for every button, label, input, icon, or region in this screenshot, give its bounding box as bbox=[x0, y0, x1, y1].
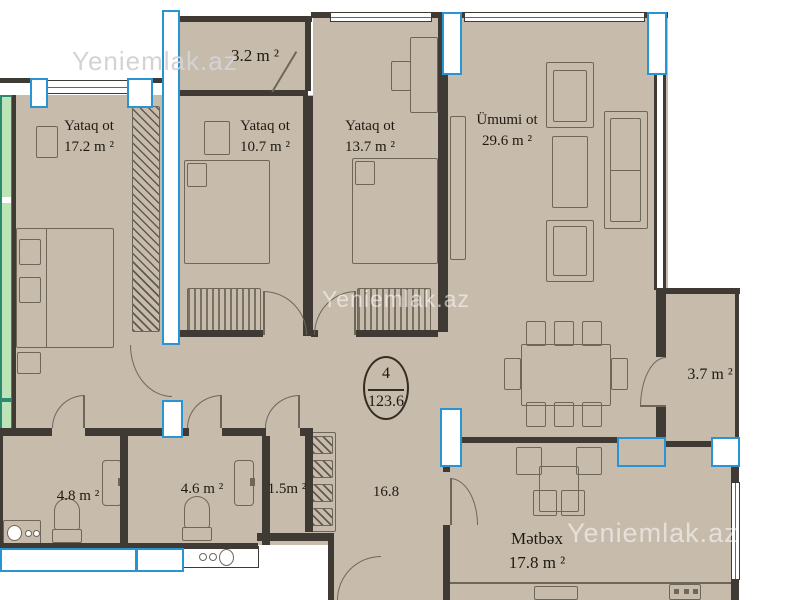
room-area: 4.6 m ² bbox=[181, 479, 223, 500]
chair-icon bbox=[504, 358, 521, 390]
radiator-icon bbox=[187, 288, 261, 332]
dining-table-icon bbox=[521, 344, 611, 406]
shelf-cell bbox=[312, 508, 333, 526]
wall bbox=[0, 433, 3, 545]
desk-icon bbox=[204, 121, 230, 155]
room-area: 1.5m ² bbox=[268, 479, 307, 500]
basin-tap-icon bbox=[33, 530, 40, 537]
room-label-living: Ümumi ot 29.6 m ² bbox=[476, 110, 537, 153]
wall bbox=[731, 578, 739, 600]
chair-icon bbox=[526, 321, 546, 346]
wall bbox=[222, 428, 266, 436]
room-label-closet: 1.5m ² bbox=[268, 479, 307, 500]
wall bbox=[0, 78, 32, 83]
door-leaf bbox=[450, 478, 452, 525]
room-label-wc: 4.6 m ² bbox=[181, 479, 223, 500]
door-leaf bbox=[640, 405, 666, 407]
door-leaf bbox=[83, 395, 85, 428]
pillow-icon bbox=[355, 161, 375, 185]
room-area: 3.2 m ² bbox=[231, 44, 279, 68]
wall bbox=[257, 533, 334, 541]
chair-icon bbox=[533, 490, 557, 516]
shower-panel-knob bbox=[250, 478, 255, 486]
sink-bowl-icon bbox=[219, 549, 234, 566]
room-name: Mətbəx bbox=[509, 527, 566, 551]
chair-icon bbox=[516, 447, 542, 475]
room-name: Yataq ot bbox=[345, 116, 395, 137]
chair-icon bbox=[391, 61, 411, 91]
wall bbox=[303, 96, 313, 336]
room-name: Ümumi ot bbox=[476, 110, 537, 131]
wall bbox=[328, 533, 334, 600]
wall bbox=[170, 16, 312, 22]
green-balcony-divider bbox=[2, 398, 11, 402]
room-label-hallway: 16.8 bbox=[373, 482, 399, 503]
room-label-balcony-right: 3.7 m ² bbox=[687, 364, 732, 387]
pillar-blue bbox=[442, 12, 462, 75]
desk-icon bbox=[410, 37, 438, 113]
basin-tap-icon bbox=[25, 530, 32, 537]
wall bbox=[443, 525, 450, 600]
sink-tap-icon bbox=[199, 553, 207, 561]
watermark: Yeniemlak.az bbox=[322, 286, 470, 313]
wall bbox=[305, 21, 311, 91]
side-table-icon bbox=[17, 352, 41, 374]
pillar-blue bbox=[711, 437, 740, 467]
window-band-blue bbox=[0, 548, 184, 572]
wall bbox=[735, 294, 739, 444]
room-name: Yataq ot bbox=[64, 116, 114, 137]
shelf-cell bbox=[312, 460, 333, 478]
pillow-icon bbox=[19, 239, 41, 265]
window bbox=[46, 80, 128, 94]
kitchen-side-table-icon bbox=[534, 586, 578, 600]
wall bbox=[178, 330, 263, 337]
stove-icon bbox=[669, 584, 701, 600]
chair-icon bbox=[582, 402, 602, 427]
wall bbox=[656, 288, 740, 294]
toilet-icon bbox=[184, 496, 210, 528]
wall bbox=[0, 428, 52, 436]
sink-tap-icon bbox=[209, 553, 217, 561]
room-area: 16.8 bbox=[373, 482, 399, 503]
room-label-bedroom-1: Yataq ot 17.2 m ² bbox=[64, 116, 114, 159]
chair-icon bbox=[582, 321, 602, 346]
window bbox=[464, 12, 645, 22]
unit-badge: 4 123.6 bbox=[363, 356, 409, 420]
wall bbox=[656, 290, 666, 357]
badge-rooms-count: 4 bbox=[365, 365, 407, 383]
green-balcony-gap bbox=[2, 197, 11, 203]
room-area: 4.8 m ² bbox=[57, 486, 99, 507]
wall bbox=[178, 90, 308, 96]
room-area: 17.8 m ² bbox=[509, 551, 566, 575]
badge-total-area: 123.6 bbox=[361, 393, 411, 411]
room-area: 10.7 m ² bbox=[240, 137, 290, 158]
tv-stand-icon bbox=[450, 116, 466, 260]
toilet-tank bbox=[182, 527, 212, 541]
pillar-blue bbox=[647, 12, 667, 75]
shelf-cell bbox=[312, 436, 333, 454]
bed-headboard-line bbox=[46, 229, 47, 347]
chair-icon bbox=[554, 402, 574, 427]
room-label-bedroom-2: Yataq ot 10.7 m ² bbox=[240, 116, 290, 159]
room-label-balcony-top: 3.2 m ² bbox=[231, 44, 279, 68]
wardrobe-icon bbox=[132, 106, 160, 332]
armchair-inner bbox=[553, 70, 587, 122]
chair-icon bbox=[526, 402, 546, 427]
toilet-tank bbox=[52, 529, 82, 543]
armchair-inner bbox=[553, 226, 587, 276]
basin-bowl-icon bbox=[7, 525, 22, 541]
sofa-cushion-divider bbox=[611, 170, 640, 171]
pillow-icon bbox=[187, 163, 207, 187]
room-area: 3.7 m ² bbox=[687, 364, 732, 387]
wall bbox=[448, 437, 620, 443]
room-area: 13.7 m ² bbox=[345, 137, 395, 158]
wall bbox=[120, 436, 128, 545]
room-area: 29.6 m ² bbox=[476, 131, 537, 152]
room-name: Yataq ot bbox=[240, 116, 290, 137]
wall bbox=[663, 441, 715, 447]
chair-icon bbox=[561, 490, 585, 516]
pillow-icon bbox=[19, 277, 41, 303]
nightstand-icon bbox=[36, 126, 58, 158]
wall bbox=[300, 428, 313, 436]
door-leaf bbox=[298, 395, 300, 428]
room-label-bathroom: 4.8 m ² bbox=[57, 486, 99, 507]
door-leaf bbox=[263, 291, 265, 335]
pillar-blue bbox=[617, 437, 666, 467]
floor-plan: Yataq ot 17.2 m ² Yataq ot 10.7 m ² Yata… bbox=[0, 0, 800, 600]
badge-divider bbox=[368, 389, 404, 391]
window-box-blue bbox=[127, 78, 153, 108]
window bbox=[330, 12, 432, 22]
wall bbox=[183, 428, 189, 436]
watermark: Yeniemlak.az bbox=[72, 46, 238, 77]
wall bbox=[85, 428, 163, 436]
chair-icon bbox=[554, 321, 574, 346]
door-leaf bbox=[220, 395, 222, 428]
shelf-cell bbox=[312, 484, 333, 502]
coffee-table-icon bbox=[552, 136, 588, 208]
pillar-blue bbox=[440, 408, 462, 467]
window-box-blue bbox=[30, 78, 48, 108]
wall bbox=[152, 78, 162, 83]
pillar-blue bbox=[162, 400, 183, 438]
watermark: Yeniemlak.az bbox=[567, 518, 739, 549]
chair-icon bbox=[611, 358, 628, 390]
wall bbox=[356, 330, 438, 337]
room-area: 17.2 m ² bbox=[64, 137, 114, 158]
room-label-bedroom-3: Yataq ot 13.7 m ² bbox=[345, 116, 395, 159]
chair-icon bbox=[576, 447, 602, 475]
room-label-kitchen: Mətbəx 17.8 m ² bbox=[509, 527, 566, 575]
wall bbox=[12, 95, 16, 435]
